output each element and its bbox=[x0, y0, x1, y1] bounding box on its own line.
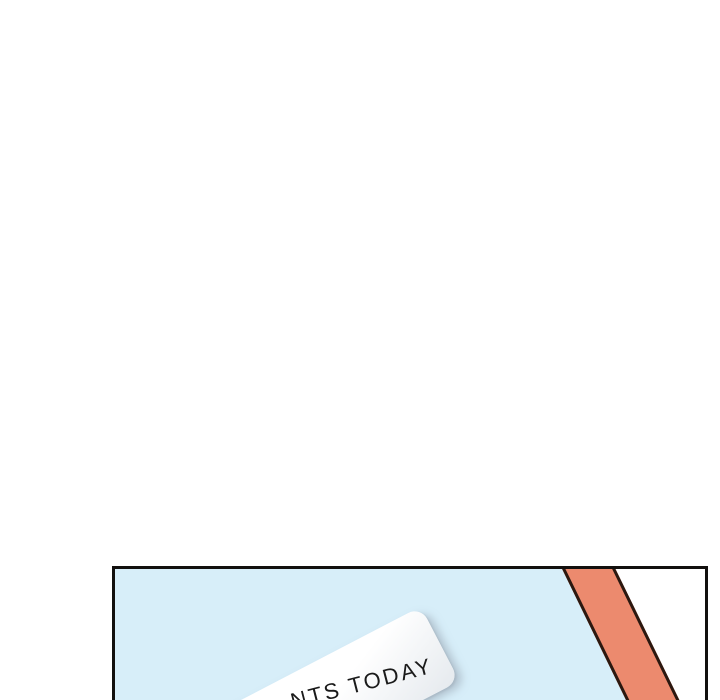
comic-panel: NTS TODAY bbox=[112, 566, 708, 700]
sign-text: NTS TODAY bbox=[288, 655, 435, 700]
page-background: NTS TODAY bbox=[0, 0, 720, 700]
sign-board: NTS TODAY bbox=[155, 606, 460, 700]
